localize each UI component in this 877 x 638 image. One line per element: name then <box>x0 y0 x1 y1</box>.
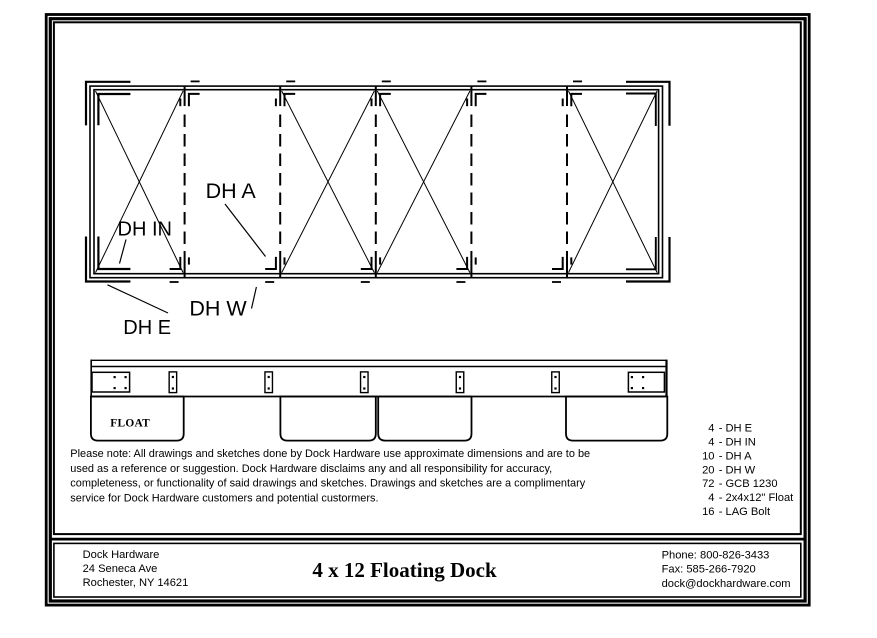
svg-text:dock@dockhardware.com: dock@dockhardware.com <box>662 578 791 590</box>
svg-text:DH E: DH E <box>123 317 171 339</box>
svg-text:4: 4 <box>708 437 714 449</box>
svg-text:20: 20 <box>702 464 714 476</box>
svg-text:Phone: 800-826-3433: Phone: 800-826-3433 <box>662 549 770 561</box>
svg-text:- DH A: - DH A <box>719 450 752 462</box>
svg-text:- DH W: - DH W <box>719 464 756 476</box>
svg-text:used as a reference or suggest: used as a reference or suggestion. Dock … <box>70 463 552 475</box>
svg-text:- GCB 1230: - GCB 1230 <box>719 478 778 490</box>
svg-text:- 2x4x12" Float: - 2x4x12" Float <box>719 492 794 504</box>
svg-text:Dock Hardware: Dock Hardware <box>83 549 160 561</box>
svg-text:Fax: 585-266-7920: Fax: 585-266-7920 <box>662 564 756 576</box>
svg-text:16: 16 <box>702 506 714 518</box>
svg-text:4: 4 <box>708 492 714 504</box>
svg-text:- DH IN: - DH IN <box>719 437 756 449</box>
svg-text:24 Seneca Ave: 24 Seneca Ave <box>83 563 158 575</box>
svg-text:DH IN: DH IN <box>118 219 172 241</box>
svg-text:4 x 12 Floating Dock: 4 x 12 Floating Dock <box>312 558 497 582</box>
svg-text:4: 4 <box>708 423 714 435</box>
svg-text:- DH E: - DH E <box>719 423 752 435</box>
svg-text:Please note: All drawings and: Please note: All drawings and sketches d… <box>70 448 590 460</box>
svg-text:DH A: DH A <box>206 179 257 203</box>
svg-text:- LAG Bolt: - LAG Bolt <box>719 506 771 518</box>
svg-text:72: 72 <box>702 478 714 490</box>
svg-text:DH W: DH W <box>189 297 247 321</box>
svg-text:FLOAT: FLOAT <box>110 418 150 430</box>
svg-text:10: 10 <box>702 450 714 462</box>
svg-text:completeness, or functionality: completeness, or functionality of said d… <box>70 478 585 490</box>
svg-text:service for Dock Hardware cust: service for Dock Hardware customers and … <box>70 492 378 504</box>
svg-text:Rochester, NY 14621: Rochester, NY 14621 <box>83 577 189 589</box>
